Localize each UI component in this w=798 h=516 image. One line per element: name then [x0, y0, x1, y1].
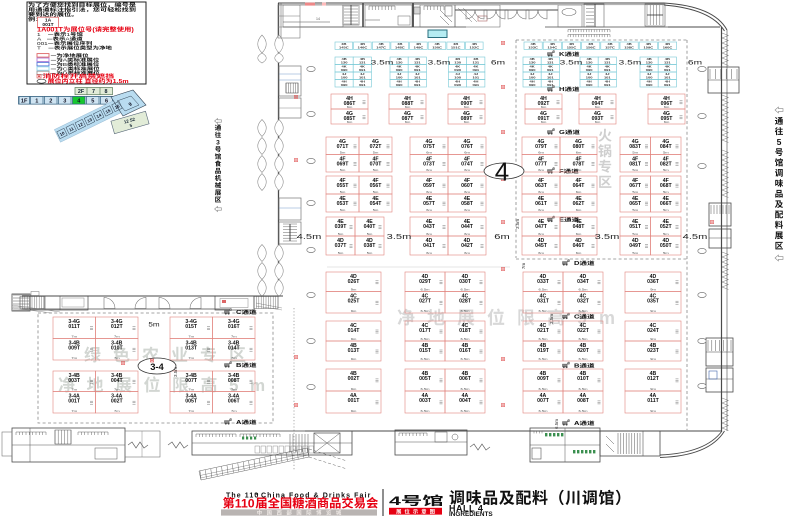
svg-text:6.5m: 6.5m — [579, 387, 588, 390]
svg-text:064T: 064T — [573, 183, 586, 189]
svg-text:6m: 6m — [464, 168, 470, 171]
svg-text:2F: 2F — [78, 89, 85, 95]
svg-text:090: 090 — [586, 83, 593, 86]
svg-text:069T: 069T — [337, 162, 350, 168]
svg-text:006T: 006T — [228, 399, 241, 405]
svg-text:6m: 6m — [347, 105, 353, 108]
svg-text:053T: 053T — [337, 201, 350, 207]
svg-text:6.5m: 6.5m — [539, 288, 548, 291]
svg-text:048T: 048T — [573, 224, 586, 230]
svg-text:091: 091 — [664, 68, 671, 71]
svg-text:005T: 005T — [185, 399, 198, 405]
svg-text:038T: 038T — [364, 243, 377, 249]
svg-text:091: 091 — [604, 68, 611, 71]
svg-text:5m: 5m — [148, 321, 159, 328]
svg-text:6.5m: 6.5m — [539, 337, 548, 340]
svg-text:6m: 6m — [595, 120, 601, 123]
svg-text:6m: 6m — [541, 105, 547, 108]
svg-text:051T: 051T — [629, 224, 642, 230]
svg-text:067T: 067T — [629, 183, 642, 189]
svg-text:013T: 013T — [348, 348, 361, 354]
svg-text:5m: 5m — [663, 168, 669, 171]
svg-text:7m: 7m — [521, 263, 526, 270]
svg-text:056T: 056T — [370, 183, 383, 189]
svg-text:6.5m: 6.5m — [421, 409, 430, 412]
svg-text:061T: 061T — [535, 201, 548, 207]
svg-text:011T: 011T — [68, 324, 80, 330]
svg-text:5m: 5m — [632, 208, 638, 211]
svg-text:6m: 6m — [576, 190, 582, 193]
svg-text:7m: 7m — [188, 388, 194, 391]
svg-text:012T: 012T — [111, 324, 124, 330]
svg-text:028T: 028T — [459, 299, 472, 305]
svg-text:5m: 5m — [632, 190, 638, 193]
svg-text:6m: 6m — [664, 105, 670, 108]
svg-text:101: 101 — [604, 76, 611, 79]
svg-text:7: 7 — [92, 89, 95, 95]
svg-text:6.5m: 6.5m — [461, 309, 470, 312]
svg-text:9m: 9m — [351, 288, 357, 291]
svg-text:156C: 156C — [586, 46, 596, 49]
svg-text:145C: 145C — [339, 46, 349, 49]
svg-text:6m: 6m — [464, 151, 470, 154]
svg-text:062T: 062T — [573, 201, 586, 207]
svg-text:160C: 160C — [663, 46, 673, 49]
svg-text:046T: 046T — [573, 243, 586, 249]
svg-text:100: 100 — [396, 76, 403, 79]
svg-text:6m: 6m — [347, 120, 353, 123]
svg-text:043T: 043T — [423, 224, 436, 230]
svg-text:014T: 014T — [348, 328, 361, 334]
svg-text:6.5m: 6.5m — [554, 419, 559, 429]
svg-text:074T: 074T — [461, 162, 474, 168]
svg-text:036T: 036T — [647, 279, 660, 285]
svg-text:026T: 026T — [348, 279, 361, 285]
svg-text:015T: 015T — [419, 348, 432, 354]
svg-text:007T: 007T — [185, 378, 198, 384]
svg-text:035T: 035T — [647, 299, 660, 305]
svg-text:152C: 152C — [469, 46, 479, 49]
svg-text:5: 5 — [777, 137, 782, 147]
svg-text:100: 100 — [454, 76, 461, 79]
svg-text:7m: 7m — [71, 409, 77, 412]
svg-text:073T: 073T — [423, 162, 436, 168]
svg-text:6.5m: 6.5m — [461, 288, 470, 291]
svg-text:5m: 5m — [663, 208, 669, 211]
svg-text:101: 101 — [414, 76, 421, 79]
svg-text:6m: 6m — [426, 168, 432, 171]
svg-text:6.5m: 6.5m — [421, 357, 430, 360]
svg-text:6.5m: 6.5m — [579, 357, 588, 360]
svg-text:5m: 5m — [632, 251, 638, 254]
svg-text:6m: 6m — [664, 120, 670, 123]
svg-text:4: 4 — [389, 494, 401, 508]
svg-text:5m: 5m — [340, 151, 346, 154]
svg-text:6.5m: 6.5m — [579, 409, 588, 412]
svg-text:7m: 7m — [71, 356, 77, 359]
svg-text:059T: 059T — [423, 183, 436, 189]
svg-text:012T: 012T — [647, 376, 660, 382]
svg-text:5m: 5m — [340, 208, 346, 211]
svg-text:022T: 022T — [577, 328, 590, 334]
svg-text:006T: 006T — [459, 376, 472, 382]
svg-text:5m: 5m — [632, 232, 638, 235]
svg-text:6m: 6m — [464, 105, 470, 108]
svg-text:6m: 6m — [538, 232, 544, 235]
svg-text:7m: 7m — [114, 388, 120, 391]
svg-text:B: B — [574, 363, 580, 369]
svg-text:5m: 5m — [367, 251, 373, 254]
svg-text:090: 090 — [341, 83, 348, 86]
svg-text:008T: 008T — [577, 398, 590, 404]
svg-text:7m: 7m — [71, 335, 77, 338]
svg-text:5m: 5m — [663, 151, 669, 154]
svg-text:C: C — [574, 314, 580, 320]
svg-text:055T: 055T — [337, 183, 350, 189]
svg-text:158C: 158C — [624, 46, 634, 49]
svg-text:153C: 153C — [528, 46, 538, 49]
svg-text:5m: 5m — [632, 151, 638, 154]
svg-text:009T: 009T — [537, 376, 550, 382]
svg-text:002T: 002T — [111, 399, 124, 405]
svg-text:154C: 154C — [547, 46, 557, 49]
svg-text:076T: 076T — [461, 144, 474, 150]
svg-text:025T: 025T — [348, 299, 361, 305]
svg-text:016T: 016T — [228, 324, 241, 330]
svg-text:D: D — [574, 261, 580, 267]
svg-text:3.5m: 3.5m — [515, 219, 520, 229]
svg-text:084T: 084T — [660, 144, 673, 150]
svg-text:091: 091 — [472, 68, 479, 71]
svg-text:042T: 042T — [461, 243, 474, 249]
svg-text:6m: 6m — [576, 168, 582, 171]
svg-text:9m: 9m — [650, 337, 656, 340]
svg-text:090: 090 — [529, 68, 536, 71]
svg-text:9m: 9m — [351, 309, 357, 312]
svg-text:7m: 7m — [71, 388, 77, 391]
svg-text:131: 131 — [472, 61, 479, 64]
svg-text:130: 130 — [396, 61, 403, 64]
svg-text:H: H — [559, 87, 565, 93]
svg-text:6m: 6m — [464, 251, 470, 254]
svg-text:065T: 065T — [629, 201, 642, 207]
svg-text:130: 130 — [529, 61, 536, 64]
svg-text:6.5m: 6.5m — [579, 288, 588, 291]
svg-text:008T: 008T — [228, 378, 241, 384]
svg-text:7m: 7m — [188, 356, 194, 359]
svg-text:3: 3 — [216, 139, 220, 146]
svg-text:6.5m: 6.5m — [461, 337, 470, 340]
svg-text:6m: 6m — [538, 151, 544, 154]
svg-text:070T: 070T — [370, 162, 383, 168]
svg-text:7m: 7m — [114, 335, 120, 338]
svg-text:009T: 009T — [68, 346, 81, 352]
svg-text:th: th — [255, 491, 259, 496]
svg-text:6.5m: 6.5m — [421, 309, 430, 312]
svg-text:057T: 057T — [423, 201, 436, 207]
svg-text:9m: 9m — [650, 387, 656, 390]
svg-text:090: 090 — [396, 83, 403, 86]
svg-text:130: 130 — [586, 61, 593, 64]
svg-text:071T: 071T — [337, 144, 350, 150]
svg-text:010T: 010T — [111, 346, 124, 352]
svg-text:021T: 021T — [537, 328, 550, 334]
svg-text:6m: 6m — [464, 190, 470, 193]
svg-text:6m: 6m — [464, 232, 470, 235]
svg-text:004T: 004T — [111, 378, 124, 384]
svg-text:5m: 5m — [632, 168, 638, 171]
svg-text:6.5m: 6.5m — [579, 337, 588, 340]
svg-text:6m: 6m — [576, 232, 582, 235]
svg-text:083T: 083T — [629, 144, 642, 150]
svg-text:130: 130 — [646, 61, 653, 64]
svg-text:3.5m: 3.5m — [549, 314, 554, 324]
svg-text:027T: 027T — [419, 299, 432, 305]
svg-text:6.5m: 6.5m — [461, 387, 470, 390]
svg-text:033T: 033T — [537, 279, 550, 285]
svg-text:14: 14 — [316, 17, 320, 21]
svg-text:068T: 068T — [660, 183, 673, 189]
svg-text:151C: 151C — [451, 46, 461, 49]
svg-text:5m: 5m — [340, 168, 346, 171]
svg-text:3.5m: 3.5m — [619, 58, 642, 66]
svg-text:007T: 007T — [537, 398, 550, 404]
svg-text:5m: 5m — [367, 232, 373, 235]
svg-text:7m: 7m — [188, 409, 194, 412]
svg-text:6m: 6m — [464, 120, 470, 123]
svg-text:091: 091 — [604, 83, 611, 86]
svg-text:A: A — [236, 420, 242, 426]
svg-text:075T: 075T — [423, 144, 436, 150]
svg-text:078T: 078T — [573, 162, 586, 168]
svg-text:090: 090 — [646, 83, 653, 86]
svg-text:149C: 149C — [414, 46, 424, 49]
svg-text:004T: 004T — [459, 398, 472, 404]
svg-text:101: 101 — [359, 76, 366, 79]
svg-text:6m: 6m — [426, 232, 432, 235]
svg-text:091: 091 — [414, 83, 421, 86]
svg-text:058T: 058T — [461, 201, 474, 207]
svg-text:041T: 041T — [423, 243, 436, 249]
svg-text:6m: 6m — [688, 58, 702, 66]
svg-text:3.5m: 3.5m — [560, 58, 583, 66]
svg-text:150C: 150C — [432, 46, 442, 49]
svg-text:020T: 020T — [577, 348, 590, 354]
svg-text:A: A — [574, 421, 580, 427]
svg-text:6.5m: 6.5m — [539, 357, 548, 360]
svg-text:131: 131 — [414, 61, 421, 64]
svg-text:6m: 6m — [576, 251, 582, 254]
svg-text:091: 091 — [359, 68, 366, 71]
svg-text:9m: 9m — [650, 357, 656, 360]
svg-text:090: 090 — [341, 68, 348, 71]
svg-text:101: 101 — [472, 76, 479, 79]
svg-text:4: 4 — [495, 157, 509, 187]
svg-text:146C: 146C — [358, 46, 368, 49]
svg-text:6m: 6m — [426, 190, 432, 193]
svg-text:6m: 6m — [405, 120, 411, 123]
svg-text:011T: 011T — [647, 398, 659, 404]
svg-text:6m: 6m — [426, 251, 432, 254]
svg-text:6.5m: 6.5m — [421, 387, 430, 390]
svg-text:6m: 6m — [494, 232, 510, 241]
svg-text:100: 100 — [529, 76, 536, 79]
svg-text:5m: 5m — [373, 151, 379, 154]
svg-text:G: G — [559, 130, 565, 136]
svg-text:6m: 6m — [426, 208, 432, 211]
svg-text:5: 5 — [91, 98, 94, 104]
svg-text:): ) — [131, 27, 133, 33]
svg-text:131: 131 — [359, 61, 366, 64]
svg-text:159C: 159C — [643, 46, 653, 49]
svg-text:7m: 7m — [231, 335, 237, 338]
svg-text:090: 090 — [454, 83, 461, 86]
svg-text:091: 091 — [414, 68, 421, 71]
svg-text:147C: 147C — [376, 46, 386, 49]
svg-text:6m: 6m — [464, 208, 470, 211]
svg-text:5m: 5m — [338, 251, 344, 254]
svg-text:044T: 044T — [461, 224, 474, 230]
svg-text:003T: 003T — [68, 378, 81, 384]
svg-text:010T: 010T — [577, 376, 590, 382]
svg-text:7m: 7m — [231, 388, 237, 391]
svg-text:019T: 019T — [537, 348, 550, 354]
svg-text:077T: 077T — [535, 162, 548, 168]
svg-text:7m: 7m — [231, 409, 237, 412]
svg-text:100: 100 — [646, 76, 653, 79]
svg-text:072T: 072T — [370, 144, 383, 150]
svg-text:002T: 002T — [348, 376, 361, 382]
svg-text:6.5m: 6.5m — [539, 387, 548, 390]
svg-text:034T: 034T — [577, 279, 590, 285]
svg-text:079T: 079T — [535, 144, 548, 150]
svg-text:6.5m: 6.5m — [539, 409, 548, 412]
svg-text:3: 3 — [63, 98, 66, 104]
svg-text:080T: 080T — [573, 144, 586, 150]
svg-text:5m: 5m — [663, 190, 669, 193]
svg-text:030T: 030T — [459, 279, 472, 285]
svg-text:100: 100 — [341, 76, 348, 79]
svg-text:091: 091 — [547, 68, 554, 71]
svg-text:066T: 066T — [660, 201, 673, 207]
svg-text:130: 130 — [454, 61, 461, 64]
svg-text:6m: 6m — [538, 190, 544, 193]
svg-text:101: 101 — [547, 76, 554, 79]
svg-text:K: K — [559, 52, 565, 58]
svg-text:005T: 005T — [419, 376, 432, 382]
svg-text:7m: 7m — [231, 356, 237, 359]
svg-text:3.5m: 3.5m — [173, 367, 178, 377]
svg-text:037T: 037T — [335, 243, 348, 249]
svg-text:9m: 9m — [650, 409, 656, 412]
svg-text:6m: 6m — [491, 58, 505, 66]
svg-text:054T: 054T — [370, 201, 383, 207]
svg-text:029T: 029T — [419, 279, 432, 285]
svg-text:001T: 001T — [68, 399, 81, 405]
svg-text:6m: 6m — [541, 120, 547, 123]
svg-text:5m: 5m — [373, 168, 379, 171]
svg-text:045T: 045T — [535, 243, 548, 249]
svg-text:7m: 7m — [114, 409, 120, 412]
svg-text:7m: 7m — [114, 356, 120, 359]
svg-text:018T: 018T — [459, 328, 472, 334]
svg-text:C: C — [236, 310, 242, 316]
svg-text:023T: 023T — [647, 348, 660, 354]
svg-text:157C: 157C — [605, 46, 615, 49]
svg-text:6m: 6m — [426, 151, 432, 154]
svg-text:6m: 6m — [576, 151, 582, 154]
svg-text:2: 2 — [49, 98, 52, 104]
svg-text:6m: 6m — [538, 251, 544, 254]
svg-text:091: 091 — [664, 83, 671, 86]
svg-text:082T: 082T — [660, 162, 673, 168]
svg-text:1: 1 — [35, 98, 38, 104]
svg-text:9m: 9m — [351, 357, 357, 360]
svg-text:5m: 5m — [663, 251, 669, 254]
svg-text:6.5m: 6.5m — [579, 309, 588, 312]
svg-text:8: 8 — [105, 89, 108, 95]
svg-text:3.5m: 3.5m — [428, 58, 451, 66]
svg-text:9m: 9m — [351, 387, 357, 390]
svg-text:130: 130 — [341, 61, 348, 64]
svg-text:3.5m: 3.5m — [371, 58, 394, 66]
svg-text:031T: 031T — [537, 299, 550, 305]
svg-text:100: 100 — [586, 76, 593, 79]
svg-text:155C: 155C — [567, 46, 577, 49]
svg-text:1.5m: 1.5m — [113, 79, 129, 85]
svg-text:6m: 6m — [538, 208, 544, 211]
svg-text:001T: 001T — [348, 398, 361, 404]
svg-text:6m: 6m — [595, 105, 601, 108]
svg-text:003T: 003T — [419, 398, 432, 404]
svg-text:6.5m: 6.5m — [421, 288, 430, 291]
svg-text:6m: 6m — [576, 208, 582, 211]
svg-text:090: 090 — [586, 68, 593, 71]
svg-text:1F: 1F — [21, 98, 28, 104]
svg-text:060T: 060T — [461, 183, 474, 189]
svg-text:6.5m: 6.5m — [421, 337, 430, 340]
svg-text:081T: 081T — [629, 162, 642, 168]
svg-text:016T: 016T — [459, 348, 472, 354]
svg-text:049T: 049T — [629, 243, 642, 249]
svg-text:9m: 9m — [351, 337, 357, 340]
svg-text:5m: 5m — [373, 208, 379, 211]
svg-text:040T: 040T — [364, 224, 377, 230]
svg-text:4.5m: 4.5m — [683, 232, 708, 241]
svg-text:032T: 032T — [577, 299, 590, 305]
svg-text:017T: 017T — [419, 328, 432, 334]
svg-text:6.5m: 6.5m — [461, 409, 470, 412]
svg-text:052T: 052T — [660, 224, 673, 230]
svg-text:014T: 014T — [228, 346, 241, 352]
svg-text:T: T — [37, 46, 42, 51]
svg-text:9m: 9m — [650, 288, 656, 291]
svg-text:5m: 5m — [340, 190, 346, 193]
svg-text:3.5m: 3.5m — [595, 232, 620, 241]
svg-text:5m: 5m — [373, 190, 379, 193]
svg-text:6.5m: 6.5m — [461, 357, 470, 360]
svg-text:047T: 047T — [535, 224, 548, 230]
svg-text:7m: 7m — [188, 335, 194, 338]
svg-text:039T: 039T — [335, 224, 348, 230]
svg-text:091: 091 — [472, 83, 479, 86]
svg-text:131: 131 — [547, 61, 554, 64]
svg-text:INGREDIENTS: INGREDIENTS — [449, 511, 493, 516]
svg-text:5m: 5m — [338, 232, 344, 235]
svg-text:6m: 6m — [405, 105, 411, 108]
svg-text:3-4: 3-4 — [150, 361, 164, 372]
svg-text:090: 090 — [529, 83, 536, 86]
